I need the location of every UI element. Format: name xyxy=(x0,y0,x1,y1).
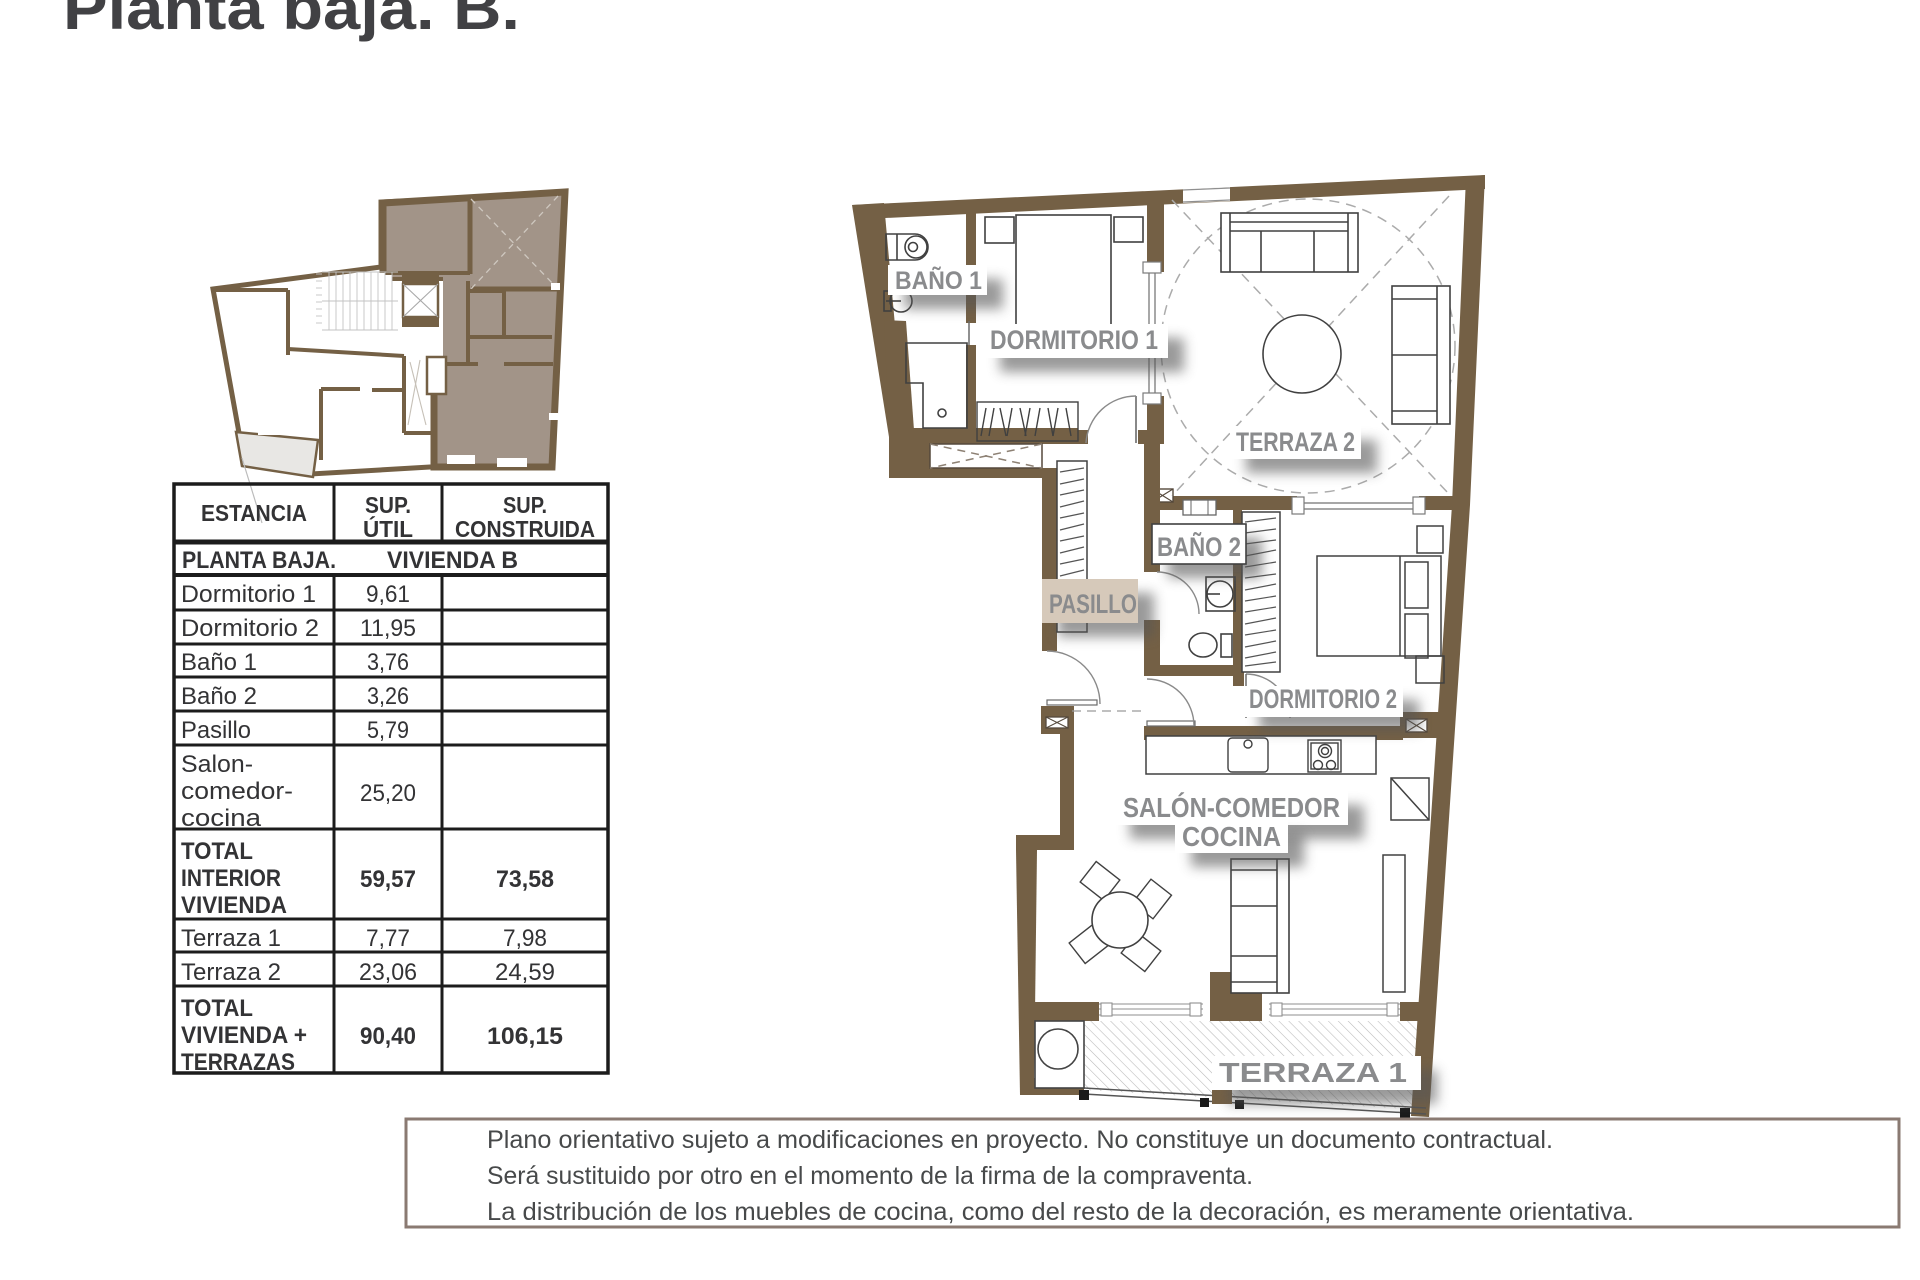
svg-text:VIVIENDA: VIVIENDA xyxy=(181,892,287,919)
svg-text:90,40: 90,40 xyxy=(360,1023,416,1050)
svg-text:SUP.: SUP. xyxy=(503,492,547,518)
svg-text:SUP.: SUP. xyxy=(365,492,411,518)
svg-text:Salon-: Salon- xyxy=(181,751,253,778)
svg-text:COCINA: COCINA xyxy=(1182,821,1281,852)
svg-text:TOTAL: TOTAL xyxy=(181,995,253,1022)
svg-text:Pasillo: Pasillo xyxy=(181,717,251,744)
svg-text:Dormitorio 1: Dormitorio 1 xyxy=(181,581,316,608)
svg-text:TERRAZA 1: TERRAZA 1 xyxy=(1219,1057,1407,1088)
svg-text:DORMITORIO 1: DORMITORIO 1 xyxy=(990,325,1158,355)
svg-text:Terraza 2: Terraza 2 xyxy=(181,959,281,986)
svg-text:Baño 2: Baño 2 xyxy=(181,683,257,710)
svg-text:25,20: 25,20 xyxy=(360,780,416,807)
svg-text:23,06: 23,06 xyxy=(359,959,417,986)
svg-text:SALÓN-COMEDOR: SALÓN-COMEDOR xyxy=(1123,792,1340,823)
svg-text:TERRAZA 2: TERRAZA 2 xyxy=(1236,427,1355,457)
svg-text:ÚTIL: ÚTIL xyxy=(363,515,413,542)
svg-text:Plano orientativo sujeto a mod: Plano orientativo sujeto a modificacione… xyxy=(487,1126,1553,1154)
svg-text:Dormitorio 2: Dormitorio 2 xyxy=(181,615,319,642)
svg-text:11,95: 11,95 xyxy=(360,615,416,642)
svg-text:TOTAL: TOTAL xyxy=(181,838,253,865)
svg-text:BAÑO 2: BAÑO 2 xyxy=(1157,531,1241,562)
svg-text:Será sustituido por otro en el: Será sustituido por otro en el momento d… xyxy=(487,1162,1253,1190)
svg-text:3,26: 3,26 xyxy=(367,683,409,710)
svg-text:CONSTRUIDA: CONSTRUIDA xyxy=(455,516,595,542)
svg-text:Terraza 1: Terraza 1 xyxy=(181,925,281,952)
svg-text:Planta baja. B.: Planta baja. B. xyxy=(63,0,520,42)
svg-text:Baño 1: Baño 1 xyxy=(181,649,257,676)
svg-text:INTERIOR: INTERIOR xyxy=(181,865,281,892)
svg-text:7,77: 7,77 xyxy=(366,925,410,952)
svg-text:59,57: 59,57 xyxy=(360,866,416,893)
svg-text:9,61: 9,61 xyxy=(366,581,410,608)
svg-text:DORMITORIO 2: DORMITORIO 2 xyxy=(1249,684,1397,714)
svg-text:24,59: 24,59 xyxy=(495,959,555,986)
svg-text:La distribución de los muebles: La distribución de los muebles de cocina… xyxy=(487,1198,1634,1226)
svg-text:ESTANCIA: ESTANCIA xyxy=(201,500,307,526)
svg-text:VIVIENDA +: VIVIENDA + xyxy=(181,1022,307,1049)
svg-text:PASILLO: PASILLO xyxy=(1049,589,1137,619)
svg-text:106,15: 106,15 xyxy=(487,1023,563,1050)
svg-text:VIVIENDA B: VIVIENDA B xyxy=(387,547,518,574)
svg-text:BAÑO 1: BAÑO 1 xyxy=(895,265,982,295)
svg-text:5,79: 5,79 xyxy=(367,717,409,744)
svg-text:comedor-: comedor- xyxy=(181,778,293,805)
svg-text:3,76: 3,76 xyxy=(367,649,409,676)
svg-text:PLANTA BAJA.: PLANTA BAJA. xyxy=(182,547,336,574)
svg-text:cocina: cocina xyxy=(181,805,262,832)
svg-text:73,58: 73,58 xyxy=(496,866,554,893)
svg-text:TERRAZAS: TERRAZAS xyxy=(181,1049,295,1076)
svg-text:7,98: 7,98 xyxy=(503,925,547,952)
